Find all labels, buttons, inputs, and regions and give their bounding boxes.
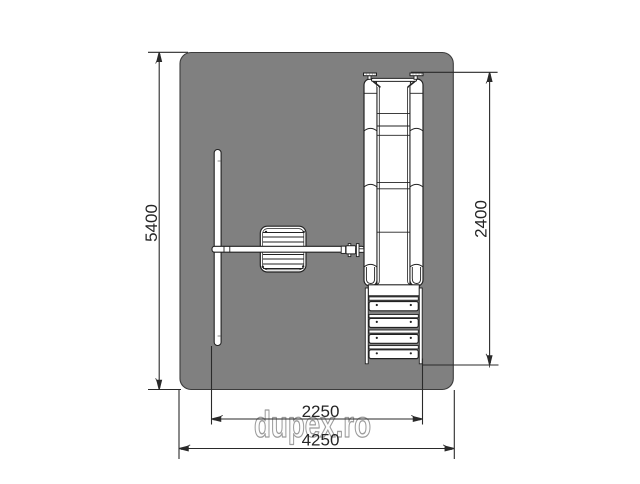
svg-text:2400: 2400 [472, 200, 491, 238]
svg-text:2250: 2250 [302, 402, 340, 421]
svg-text:5400: 5400 [142, 204, 161, 242]
svg-text:4250: 4250 [302, 431, 340, 450]
